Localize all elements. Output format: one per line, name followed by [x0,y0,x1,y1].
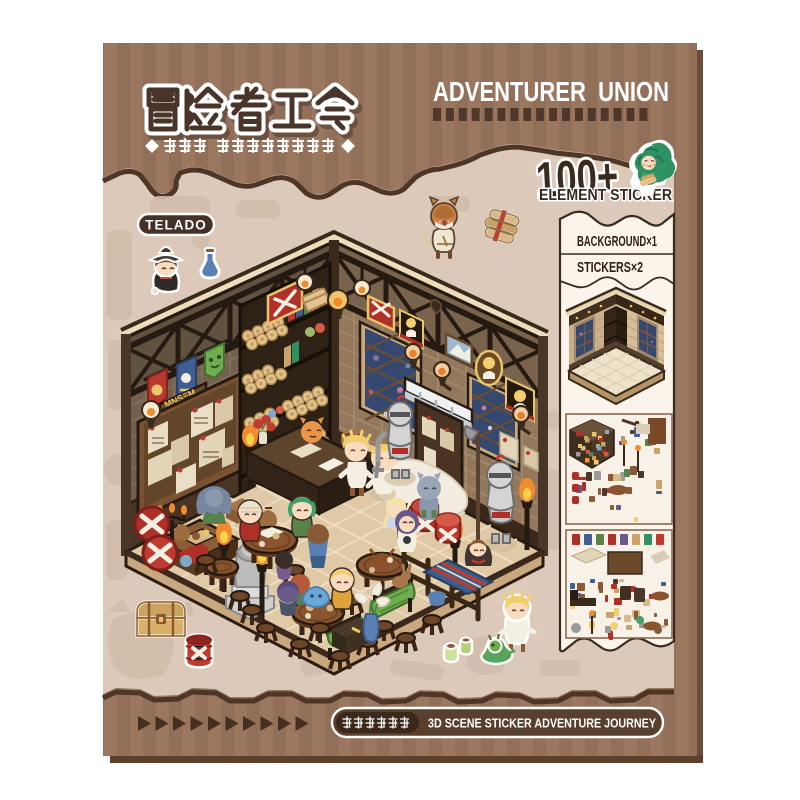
svg-text:TELADO: TELADO [145,218,207,233]
svg-text:BACKGROUND×1: BACKGROUND×1 [577,234,657,250]
svg-text:ADVENTURER UNION: ADVENTURER UNION [433,76,669,107]
svg-text:STICKERS×2: STICKERS×2 [577,260,643,276]
svg-text:3D SCENE STICKER ADVENTURE JOU: 3D SCENE STICKER ADVENTURE JOURNEY [428,716,656,731]
